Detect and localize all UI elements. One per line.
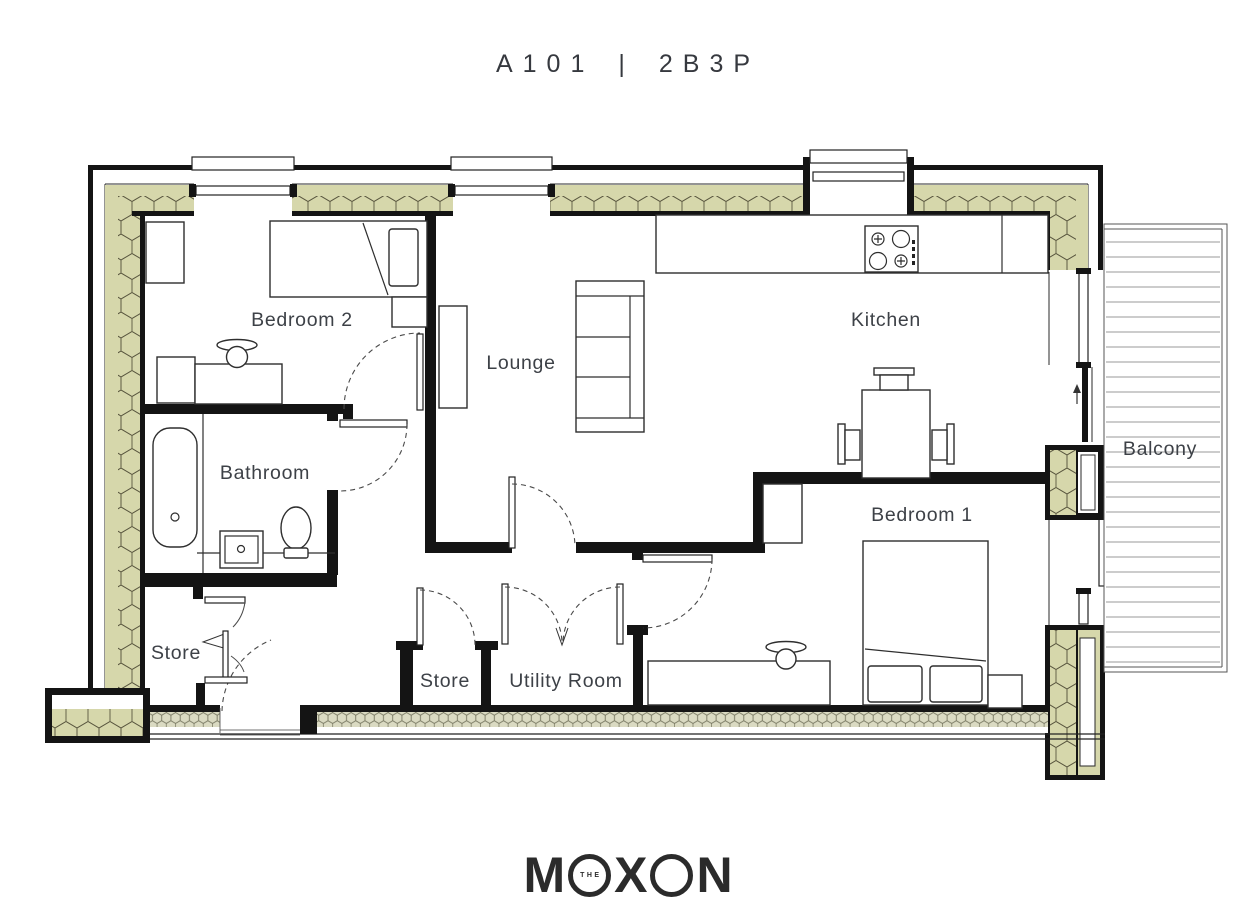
wall-pier <box>1045 445 1105 520</box>
dining-table <box>862 390 930 478</box>
logo-letter: X <box>614 853 647 897</box>
dresser <box>648 661 830 705</box>
room-label-balcony: Balcony <box>1123 438 1197 460</box>
bathroom-fixtures <box>153 414 335 573</box>
logo-prefix: THE <box>578 872 602 879</box>
toilet <box>281 507 311 558</box>
door-utility-double <box>502 584 623 645</box>
floorplan-drawing: Bedroom 2 Lounge Kitchen Bathroom Balcon… <box>0 0 1256 918</box>
sofa <box>576 281 644 432</box>
kitchen-furniture <box>656 215 1048 478</box>
dining-chair <box>838 424 860 464</box>
logo-letter: N <box>696 853 732 897</box>
desk <box>195 364 282 404</box>
room-label-store-mid: Store <box>420 670 470 692</box>
logo-brand: M THE X N <box>0 853 1256 897</box>
tv-unit <box>439 306 467 408</box>
single-bed <box>270 221 427 297</box>
wall-pier <box>45 688 150 743</box>
window <box>448 157 555 216</box>
logo-o-ring-icon <box>650 854 693 897</box>
door-store-hall <box>203 597 247 683</box>
wall-pier <box>1045 625 1105 780</box>
vase <box>217 340 257 368</box>
bedside-table <box>988 675 1022 708</box>
window <box>189 157 297 216</box>
door-bedroom2 <box>344 333 423 410</box>
room-labels: Bedroom 2 Lounge Kitchen Bathroom Balcon… <box>151 309 1197 692</box>
bedside-table <box>392 297 427 327</box>
door-bedroom1 <box>643 555 712 628</box>
dining-chair <box>874 368 914 390</box>
room-label-lounge: Lounge <box>486 352 555 374</box>
stove-hob <box>865 226 918 272</box>
dining-chair <box>932 424 954 464</box>
washbasin <box>220 531 263 568</box>
logo-letter: M <box>523 853 565 897</box>
room-label-bedroom1: Bedroom 1 <box>871 504 973 526</box>
wardrobe <box>763 484 802 543</box>
room-label-kitchen: Kitchen <box>851 309 921 331</box>
door-store-mid <box>417 588 475 645</box>
kitchen-counter <box>656 215 1048 273</box>
room-label-store-hall: Store <box>151 642 201 664</box>
entry-door <box>220 640 317 735</box>
logo-o-ring-icon: THE <box>568 854 611 897</box>
wardrobe <box>146 222 184 283</box>
double-bed <box>863 541 988 705</box>
door-lounge <box>509 477 575 548</box>
room-label-bedroom2: Bedroom 2 <box>251 309 353 331</box>
door-bathroom <box>340 420 407 491</box>
drawer-unit <box>157 357 195 403</box>
kitchen-bay-window <box>803 150 914 215</box>
bathtub <box>153 428 197 547</box>
room-label-bathroom: Bathroom <box>220 462 310 484</box>
floorplan-page: A101 | 2B3P <box>0 0 1256 918</box>
room-label-utility: Utility Room <box>509 670 623 692</box>
